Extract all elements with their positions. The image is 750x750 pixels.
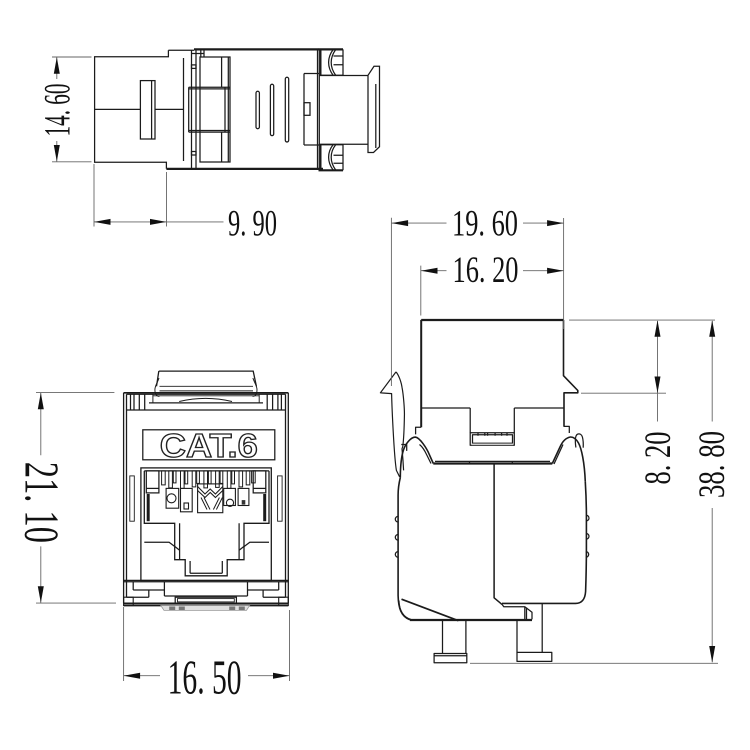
svg-text:CAT.6: CAT.6	[160, 427, 258, 464]
svg-text:16. 50: 16. 50	[168, 649, 242, 704]
svg-text:38. 80: 38. 80	[692, 431, 733, 498]
svg-text:21. 10: 21. 10	[14, 462, 69, 543]
svg-text:9. 90: 9. 90	[228, 203, 277, 244]
svg-text:19. 60: 19. 60	[452, 204, 518, 245]
svg-text:14. 60: 14. 60	[38, 84, 79, 137]
svg-text:16. 20: 16. 20	[453, 250, 519, 291]
svg-text:8. 20: 8. 20	[638, 432, 679, 485]
